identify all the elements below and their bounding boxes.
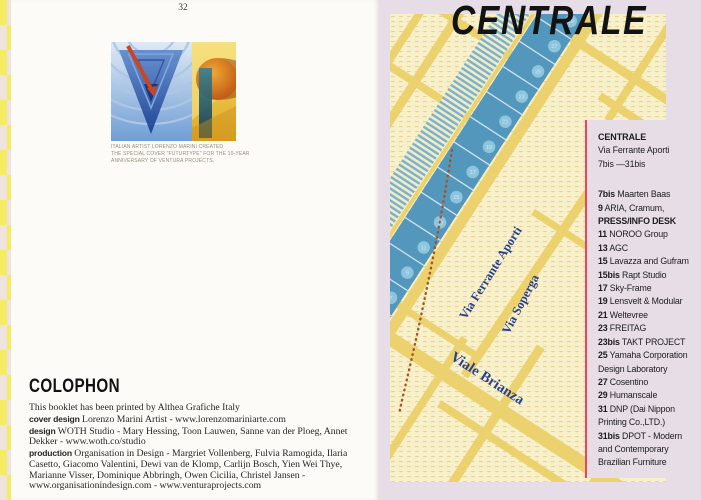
- entry-name: TAKT PROJECT: [622, 337, 685, 347]
- colophon-paragraph: design WOTH Studio - Mary Hessing, Toon …: [29, 426, 365, 449]
- entry-number: 13: [598, 243, 608, 253]
- colophon-label: production: [29, 448, 72, 458]
- left-page: 32: [11, 0, 379, 500]
- entry-name: Humanscale: [610, 390, 657, 400]
- legend-entry: 15bis Rapt Studio: [598, 269, 695, 282]
- entry-number: 27: [598, 377, 608, 387]
- legend-entry: 23 FREITAG: [598, 322, 695, 335]
- legend-entry: 31 DNP (Dai Nippon Printing Co.,LTD.): [598, 403, 695, 430]
- colophon-text: Organisation in Design - Margriet Vollen…: [29, 448, 347, 491]
- colophon-label: design: [29, 426, 56, 436]
- legend-entry: 15 Lavazza and Gufram: [598, 255, 695, 268]
- entry-number: 25: [598, 350, 608, 360]
- entry-name: AGC: [609, 243, 628, 253]
- colophon-text: WOTH Studio - Mary Hessing, Toon Lauwen,…: [29, 426, 347, 448]
- entry-number: 19: [598, 296, 608, 306]
- venue-marker-number: 9: [406, 271, 409, 277]
- legend-panel: CENTRALE Via Ferrante Aporti 7bis —31bis…: [585, 120, 701, 478]
- entry-number: 21: [598, 310, 608, 320]
- legend-entry: 21 Weltevree: [598, 309, 695, 322]
- colophon-text: This booklet has been printed by Althea …: [29, 402, 240, 413]
- colophon-paragraph: This booklet has been printed by Althea …: [29, 402, 365, 414]
- legend-entry: 29 Humanscale: [598, 389, 695, 402]
- entry-name: FREITAG: [610, 323, 646, 333]
- venue-marker-number: 23: [519, 95, 525, 101]
- venue-marker-number: 19: [486, 145, 492, 151]
- caption-line: THE SPECIAL COVER "FUTURTYPE" FOR THE 10…: [111, 151, 261, 158]
- legend-entry: 9 ARIA, Cramum,: [598, 202, 695, 215]
- venue-marker-number: 21: [502, 120, 508, 126]
- colophon-text: Lorenzo Marini Artist - www.lorenzomarin…: [82, 414, 286, 425]
- legend-entry: PRESS/INFO DESK: [598, 215, 695, 228]
- entry-name: DNP (Dai Nippon Printing Co.,LTD.): [598, 404, 675, 427]
- entry-number: 23bis: [598, 337, 620, 347]
- entry-name: Cosentino: [610, 377, 648, 387]
- legend-entry: 7bis Maarten Baas: [598, 188, 695, 201]
- page-number: 32: [163, 3, 203, 13]
- entry-number: 15bis: [598, 270, 620, 280]
- entry-number: 7bis: [598, 189, 615, 199]
- legend-entry: 13 AGC: [598, 242, 695, 255]
- entry-name: Yamaha Corporation Design Laboratory: [598, 350, 687, 373]
- entry-number: 31: [598, 404, 608, 414]
- colophon-paragraph: cover design Lorenzo Marini Artist - www…: [29, 414, 365, 426]
- entry-number: 29: [598, 390, 608, 400]
- colophon-heading: COLOPHON: [29, 376, 298, 398]
- entry-number: 9: [598, 203, 603, 213]
- legend-entry: 17 Sky-Frame: [598, 282, 695, 295]
- caption-line: ITALIAN ARTIST LORENZO MARINI CREATED: [111, 144, 261, 151]
- page-edge-stripes: [0, 0, 11, 500]
- entry-number: 23: [598, 323, 608, 333]
- legend-entries: 7bis Maarten Baas 9 ARIA, Cramum, PRESS/…: [598, 188, 695, 470]
- venue-marker-number: 15: [453, 195, 459, 201]
- legend-heading: CENTRALE: [598, 131, 701, 144]
- entry-number: 11: [598, 229, 607, 239]
- caption-line: ANNIVERSARY OF VENTURA PROJECTS.: [111, 158, 261, 165]
- legend-entry: 23bis TAKT PROJECT: [598, 336, 695, 349]
- entry-number: 15: [598, 256, 608, 266]
- entry-name: Sky-Frame: [610, 283, 652, 293]
- entry-name: Lavazza and Gufram: [610, 256, 689, 266]
- map-title: CENTRALE: [451, 0, 664, 44]
- entry-number: 31bis: [598, 431, 620, 441]
- venue-marker-number: 17: [470, 170, 476, 176]
- legend-address-line: 7bis —31bis: [598, 158, 701, 171]
- entry-name: Weltevree: [610, 310, 648, 320]
- entry-name: Rapt Studio: [622, 270, 666, 280]
- entry-name: PRESS/INFO DESK: [598, 216, 676, 226]
- entry-name: Lensvelt & Modular: [610, 296, 683, 306]
- artwork-caption: ITALIAN ARTIST LORENZO MARINI CREATED TH…: [111, 144, 261, 164]
- booklet-spread: 32: [0, 0, 701, 500]
- legend-address-line: Via Ferrante Aporti: [598, 144, 701, 157]
- entry-name: Maarten Baas: [617, 189, 670, 199]
- legend-entry: 19 Lensvelt & Modular: [598, 295, 695, 308]
- entry-name: ARIA, Cramum,: [605, 203, 665, 213]
- colophon-label: cover design: [29, 414, 80, 424]
- venue-marker-number: 7: [390, 296, 393, 302]
- artwork-image: [111, 42, 236, 141]
- legend-entry: 25 Yamaha Corporation Design Laboratory: [598, 349, 695, 376]
- legend-entry: 31bis DPOT - Modern and Contemporary Bra…: [598, 430, 695, 470]
- legend-entry: 27 Cosentino: [598, 376, 695, 389]
- entry-number: 17: [598, 283, 608, 293]
- legend-entry: 11 NOROO Group: [598, 228, 695, 241]
- entry-name: NOROO Group: [609, 229, 667, 239]
- venue-marker-number: 11: [421, 245, 427, 251]
- colophon-section: COLOPHON This booklet has been printed b…: [29, 376, 365, 492]
- venue-marker-number: 25: [535, 69, 541, 75]
- venue-marker-number: 27: [551, 44, 557, 50]
- colophon-paragraph: production Organisation in Design - Marg…: [29, 448, 365, 492]
